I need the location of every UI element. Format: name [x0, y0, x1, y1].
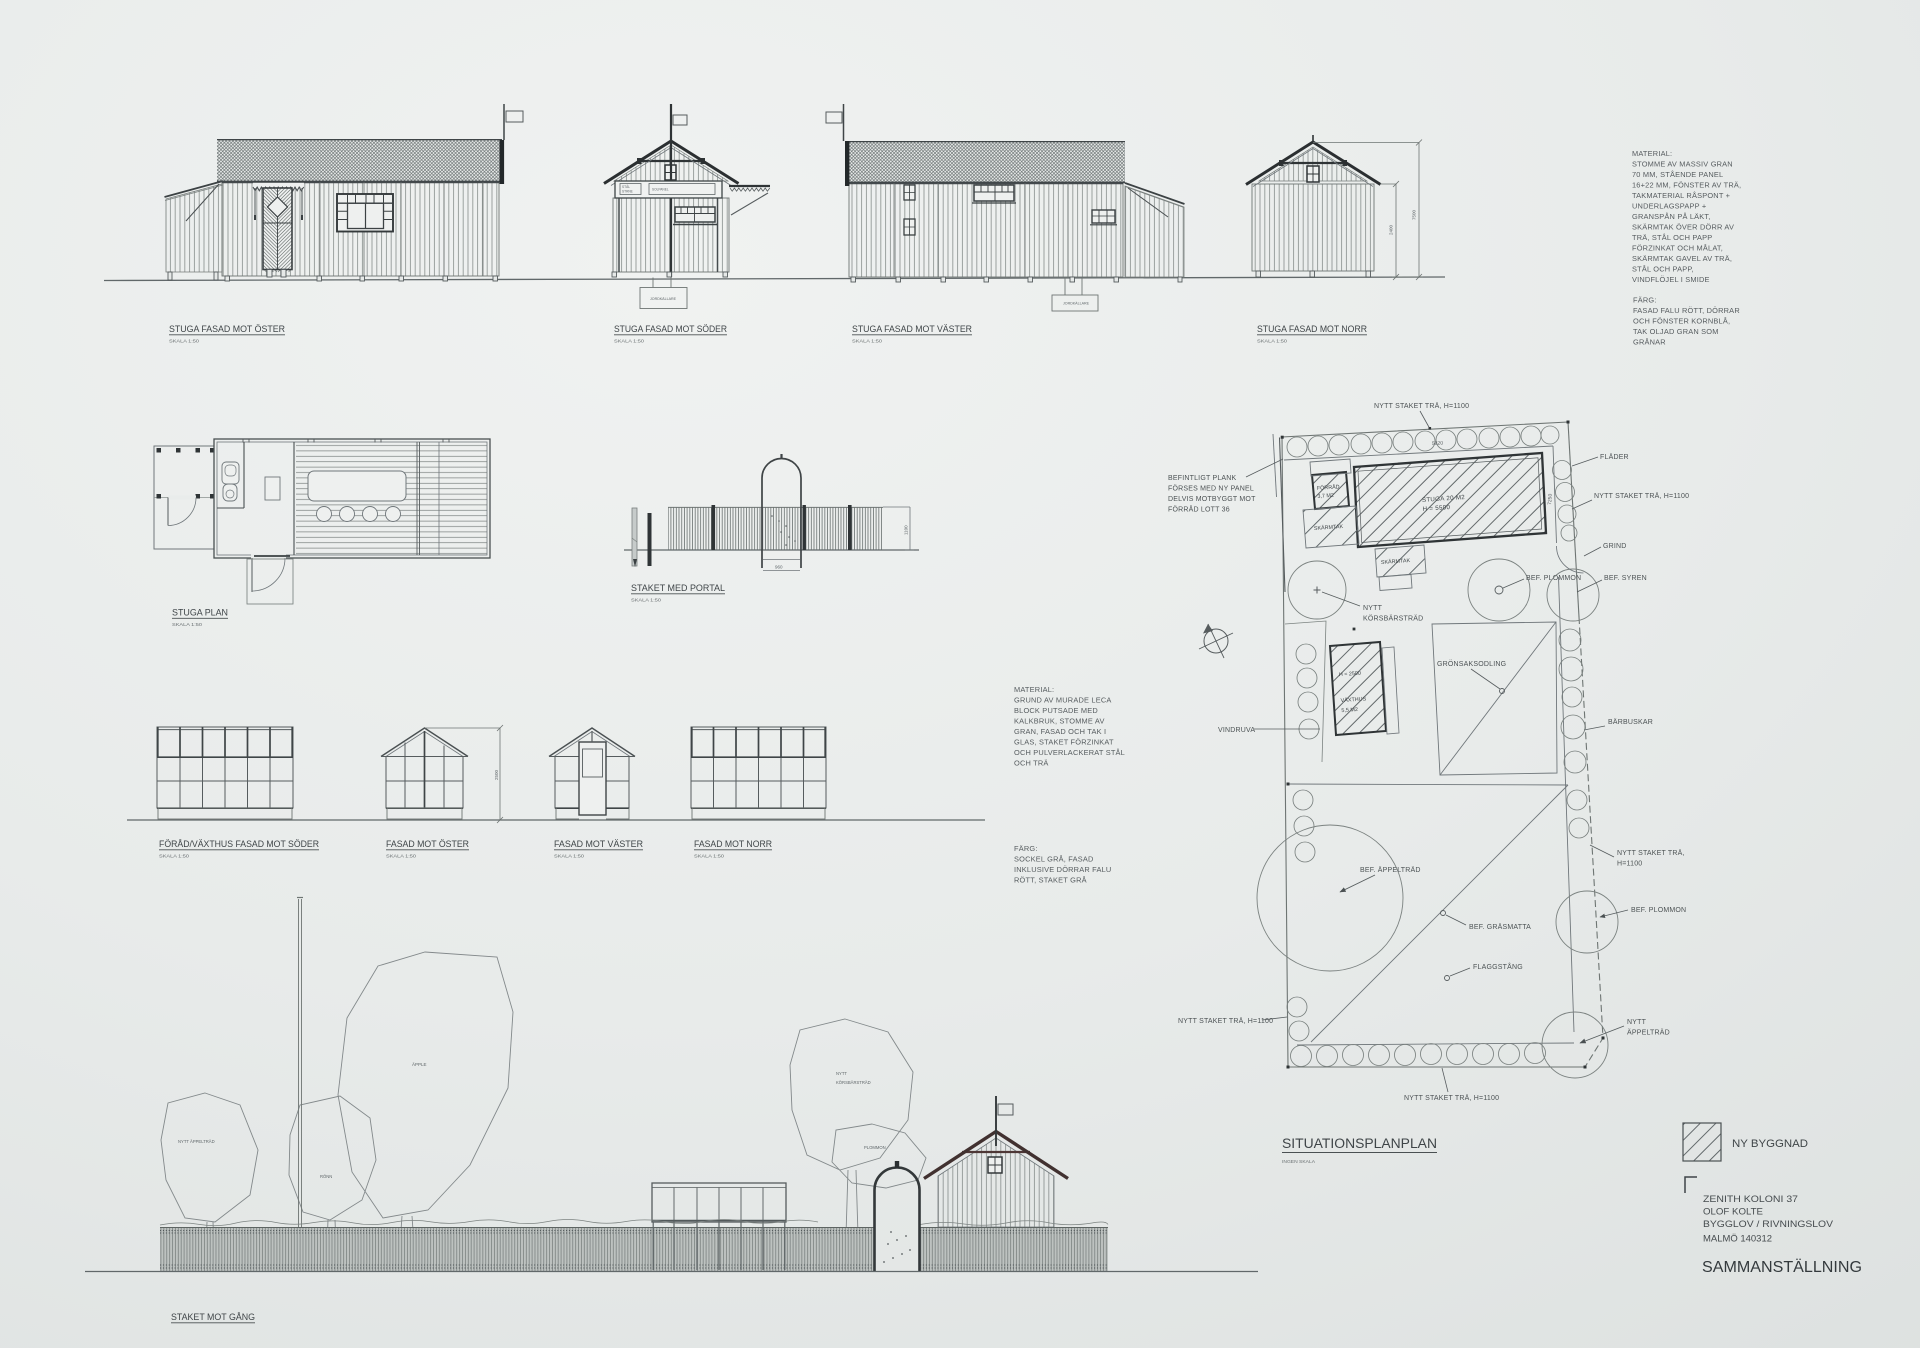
svg-text:70 MM, STÅENDE PANEL: 70 MM, STÅENDE PANEL	[1632, 170, 1723, 179]
svg-text:3,7 M2: 3,7 M2	[1317, 493, 1334, 500]
svg-text:SKALA 1:50: SKALA 1:50	[694, 854, 724, 860]
svg-text:FÖRÅD/VÄXTHUS FASAD MOT SÖDER: FÖRÅD/VÄXTHUS FASAD MOT SÖDER	[159, 839, 319, 849]
svg-text:SKALA 1:50: SKALA 1:50	[614, 339, 644, 345]
svg-text:MALMÖ 140312: MALMÖ 140312	[1703, 1234, 1772, 1245]
svg-text:RÖTT, STAKET GRÅ: RÖTT, STAKET GRÅ	[1014, 876, 1087, 885]
svg-text:NYTT: NYTT	[1627, 1019, 1647, 1026]
svg-text:FÖRSES MED NY PANEL: FÖRSES MED NY PANEL	[1168, 485, 1254, 493]
svg-text:SKALA 1:50: SKALA 1:50	[169, 339, 199, 345]
svg-text:JORDKÄLLARE: JORDKÄLLARE	[650, 297, 677, 301]
svg-text:MATERIAL:: MATERIAL:	[1632, 149, 1672, 158]
svg-text:FÖRRÅD LOTT 36: FÖRRÅD LOTT 36	[1168, 505, 1230, 514]
svg-text:1100: 1100	[904, 525, 909, 535]
svg-text:BÄRBUSKAR: BÄRBUSKAR	[1608, 718, 1653, 726]
svg-text:5820: 5820	[1432, 440, 1444, 447]
svg-text:SKALA 1:50: SKALA 1:50	[631, 598, 661, 604]
svg-text:H=1100: H=1100	[1617, 861, 1642, 868]
svg-text:RÖNN: RÖNN	[320, 1174, 332, 1179]
svg-text:FÄRG:: FÄRG:	[1014, 844, 1038, 853]
svg-text:OLOF KOLTE: OLOF KOLTE	[1703, 1207, 1763, 1218]
svg-text:STUGA FASAD MOT SÖDER: STUGA FASAD MOT SÖDER	[614, 324, 727, 334]
svg-text:NYTT STAKET TRÄ, H=1100: NYTT STAKET TRÄ, H=1100	[1178, 1017, 1273, 1025]
svg-text:GRIND: GRIND	[1603, 543, 1627, 550]
svg-text:STAKET MOT GÅNG: STAKET MOT GÅNG	[171, 1312, 255, 1322]
svg-text:FLAGGSTÅNG: FLAGGSTÅNG	[1473, 962, 1523, 971]
svg-text:INKLUSIVE DÖRRAR FALU: INKLUSIVE DÖRRAR FALU	[1014, 865, 1111, 874]
svg-text:7250: 7250	[1547, 493, 1554, 505]
svg-text:NYTT STAKET TRÄ, H=1100: NYTT STAKET TRÄ, H=1100	[1404, 1094, 1499, 1102]
svg-text:STUGA PLAN: STUGA PLAN	[172, 608, 228, 618]
svg-text:SKALA 1:50: SKALA 1:50	[852, 339, 882, 345]
svg-text:KÖRSBÄRSTRÄD: KÖRSBÄRSTRÄD	[1363, 615, 1423, 623]
svg-text:STAKET MED PORTAL: STAKET MED PORTAL	[631, 583, 725, 593]
svg-text:SOCKEL GRÅ, FASAD: SOCKEL GRÅ, FASAD	[1014, 855, 1094, 864]
svg-text:PLOMMON: PLOMMON	[864, 1145, 886, 1150]
svg-text:OCH TRÄ: OCH TRÄ	[1014, 759, 1049, 768]
svg-text:STUGA FASAD MOT VÄSTER: STUGA FASAD MOT VÄSTER	[852, 324, 972, 334]
svg-text:TAKMATERIAL RÅSPONT +: TAKMATERIAL RÅSPONT +	[1632, 191, 1730, 200]
svg-text:960: 960	[775, 565, 783, 570]
svg-text:BEF. PLOMMON: BEF. PLOMMON	[1526, 575, 1581, 582]
svg-text:SKALA 1:50: SKALA 1:50	[172, 622, 202, 628]
svg-text:FÖRZINKAT OCH MÅLAT,: FÖRZINKAT OCH MÅLAT,	[1632, 244, 1723, 253]
svg-text:KALKBRUK, STOMME AV: KALKBRUK, STOMME AV	[1014, 717, 1105, 726]
svg-text:OCH FÖNSTER KORNBLÅ,: OCH FÖNSTER KORNBLÅ,	[1633, 317, 1730, 326]
svg-text:TRÄ, STÅL OCH PAPP: TRÄ, STÅL OCH PAPP	[1632, 233, 1712, 242]
svg-text:JORDKÄLLARE: JORDKÄLLARE	[1063, 302, 1090, 306]
svg-text:BYGGLOV / RIVNINGSLOV: BYGGLOV / RIVNINGSLOV	[1703, 1219, 1834, 1230]
svg-text:UNDERLAGSPAPP +: UNDERLAGSPAPP +	[1632, 202, 1706, 211]
svg-text:KÖRSBÄRSTRÄD: KÖRSBÄRSTRÄD	[836, 1080, 871, 1085]
svg-text:BEF. ÄPPELTRÄD: BEF. ÄPPELTRÄD	[1360, 866, 1421, 874]
svg-text:FASAD MOT NORR: FASAD MOT NORR	[694, 839, 772, 849]
svg-text:NYTT: NYTT	[836, 1071, 847, 1076]
svg-text:GLAS, STAKET FÖRZINKAT: GLAS, STAKET FÖRZINKAT	[1014, 738, 1114, 747]
svg-text:SKALA 1:50: SKALA 1:50	[1257, 339, 1287, 345]
svg-text:GRÖNSAKSODLING: GRÖNSAKSODLING	[1437, 660, 1506, 668]
svg-text:SKÄRMTAK GAVEL AV TRÄ,: SKÄRMTAK GAVEL AV TRÄ,	[1632, 254, 1732, 263]
svg-text:VINDRUVA: VINDRUVA	[1218, 727, 1255, 734]
svg-text:16+22 MM, FÖNSTER AV TRÄ,: 16+22 MM, FÖNSTER AV TRÄ,	[1632, 181, 1741, 190]
svg-text:VINDFLÖJEL I SMIDE: VINDFLÖJEL I SMIDE	[1632, 275, 1710, 284]
svg-text:STUGA FASAD MOT NORR: STUGA FASAD MOT NORR	[1257, 324, 1367, 334]
svg-text:7500: 7500	[1412, 209, 1417, 220]
svg-text:NY BYGGNAD: NY BYGGNAD	[1732, 1138, 1808, 1150]
svg-text:BEF. SYREN: BEF. SYREN	[1604, 575, 1647, 582]
svg-text:5,5 M2: 5,5 M2	[1341, 707, 1358, 714]
svg-text:NYTT ÄPPELTRÄD: NYTT ÄPPELTRÄD	[178, 1139, 215, 1144]
svg-text:2500: 2500	[494, 769, 499, 780]
svg-text:NYTT STAKET TRÄ,: NYTT STAKET TRÄ,	[1617, 849, 1685, 857]
svg-text:GRANSPÅN PÅ LÄKT,: GRANSPÅN PÅ LÄKT,	[1632, 212, 1711, 221]
svg-text:BLOCK PUTSADE MED: BLOCK PUTSADE MED	[1014, 706, 1098, 715]
svg-text:STÅL OCH PAPP,: STÅL OCH PAPP,	[1632, 265, 1694, 274]
svg-text:MATERIAL:: MATERIAL:	[1014, 685, 1054, 694]
svg-text:2400: 2400	[1389, 224, 1394, 235]
svg-text:FASAD MOT ÖSTER: FASAD MOT ÖSTER	[386, 839, 469, 849]
svg-text:SKALA 1:50: SKALA 1:50	[386, 854, 416, 860]
svg-text:SKALA 1:50: SKALA 1:50	[554, 854, 584, 860]
svg-text:NYTT: NYTT	[1363, 605, 1383, 612]
svg-text:DELVIS MOTBYGGT MOT: DELVIS MOTBYGGT MOT	[1168, 496, 1256, 503]
svg-text:STUGA FASAD MOT ÖSTER: STUGA FASAD MOT ÖSTER	[169, 324, 285, 334]
svg-text:STOMME AV MASSIV GRAN: STOMME AV MASSIV GRAN	[1632, 160, 1733, 169]
svg-text:OCH PULVERLACKERAT STÅL: OCH PULVERLACKERAT STÅL	[1014, 748, 1125, 757]
svg-text:ZENITH KOLONI 37: ZENITH KOLONI 37	[1703, 1194, 1798, 1205]
svg-text:ÄPPLE: ÄPPLE	[412, 1061, 427, 1067]
svg-text:SKÄRMTAK ÖVER DÖRR AV: SKÄRMTAK ÖVER DÖRR AV	[1632, 223, 1734, 232]
svg-text:GRUND AV MURADE LECA: GRUND AV MURADE LECA	[1014, 696, 1112, 705]
svg-text:NYTT STAKET TRÄ, H=1100: NYTT STAKET TRÄ, H=1100	[1374, 402, 1469, 410]
svg-text:FLÄDER: FLÄDER	[1600, 453, 1629, 461]
svg-text:TAK OLJAD GRAN SOM: TAK OLJAD GRAN SOM	[1633, 327, 1719, 336]
svg-text:FASAD FALU RÖTT, DÖRRAR: FASAD FALU RÖTT, DÖRRAR	[1633, 306, 1740, 315]
svg-text:BEF. GRÄSMATTA: BEF. GRÄSMATTA	[1469, 923, 1531, 931]
svg-text:NYTT STAKET TRÄ, H=1100: NYTT STAKET TRÄ, H=1100	[1594, 492, 1689, 500]
svg-text:GRÅNAR: GRÅNAR	[1633, 338, 1666, 347]
svg-text:GRAN, FASAD OCH TAK I: GRAN, FASAD OCH TAK I	[1014, 727, 1106, 736]
svg-text:STRNE: STRNE	[622, 190, 633, 194]
svg-text:STÅL: STÅL	[622, 184, 630, 189]
svg-text:FÄRG:: FÄRG:	[1633, 296, 1657, 305]
svg-text:FASAD MOT VÄSTER: FASAD MOT VÄSTER	[554, 839, 643, 849]
svg-text:SKALA 1:50: SKALA 1:50	[159, 854, 189, 860]
svg-text:BEF. PLOMMON: BEF. PLOMMON	[1631, 907, 1686, 914]
svg-text:SITUATIONSPLANPLAN: SITUATIONSPLANPLAN	[1282, 1136, 1437, 1151]
svg-text:SOLPANEL: SOLPANEL	[652, 188, 669, 192]
svg-text:INGEN SKALA: INGEN SKALA	[1282, 1159, 1316, 1165]
svg-text:SAMMANSTÄLLNING: SAMMANSTÄLLNING	[1702, 1259, 1862, 1276]
svg-text:BEFINTLIGT PLANK: BEFINTLIGT PLANK	[1168, 475, 1237, 482]
svg-text:ÄPPELTRÄD: ÄPPELTRÄD	[1627, 1029, 1670, 1037]
